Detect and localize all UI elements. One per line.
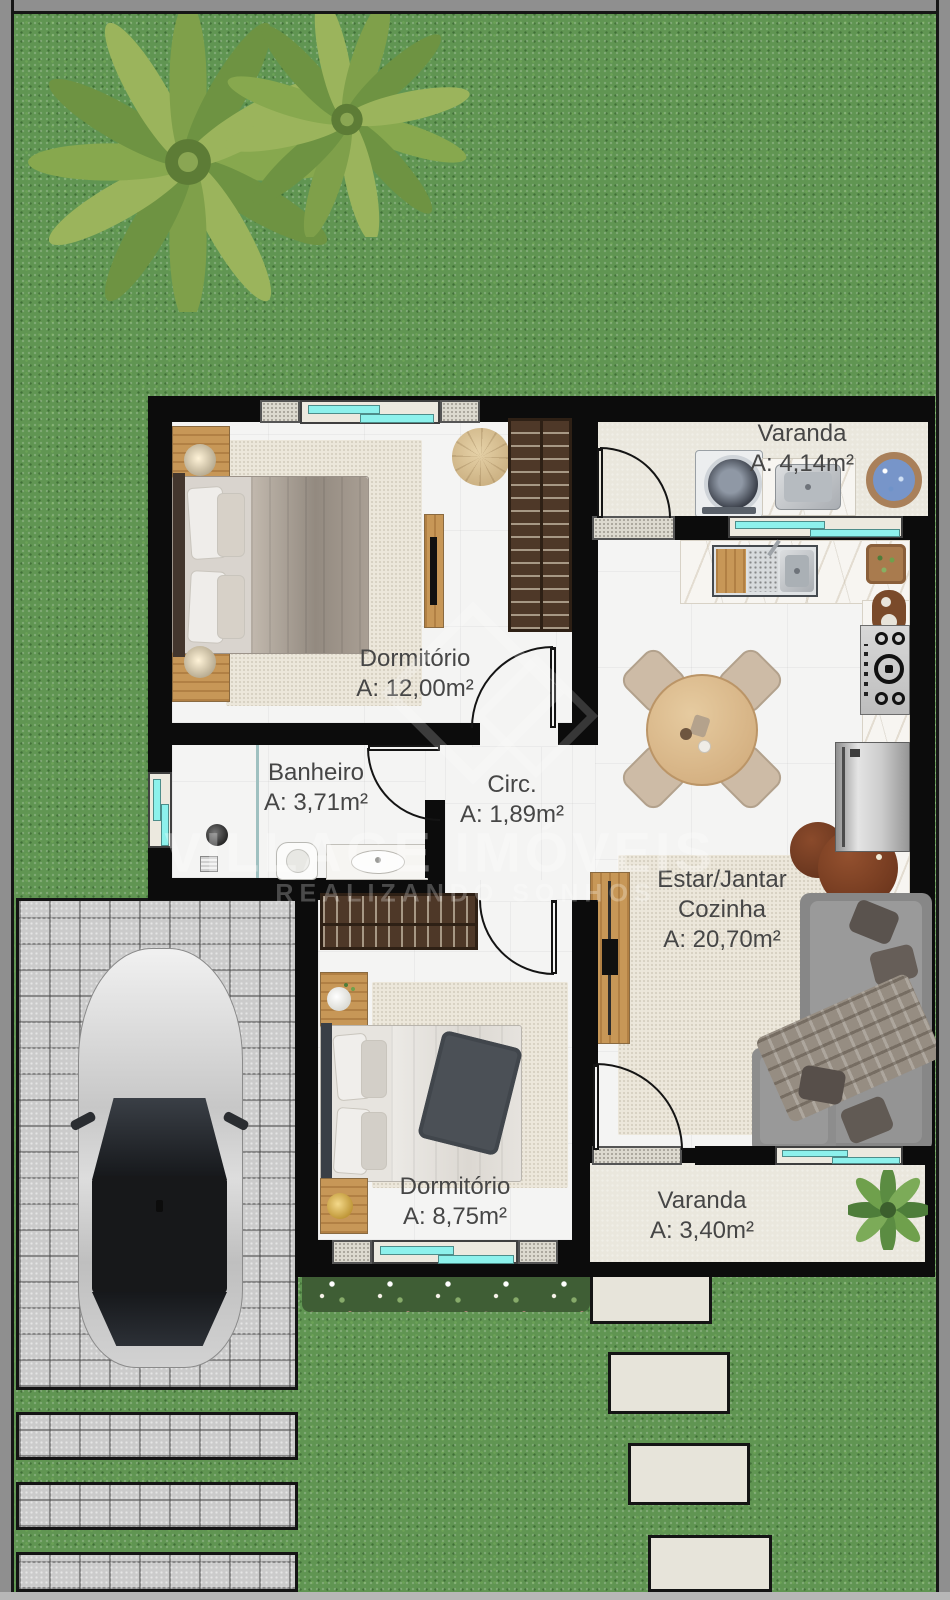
site-border-bottom xyxy=(0,1592,950,1600)
wall-segment xyxy=(572,900,598,1148)
wall-segment xyxy=(572,396,598,745)
window xyxy=(300,400,440,424)
room-name: Dormitório xyxy=(400,1172,511,1202)
stepping-stone xyxy=(648,1535,772,1592)
door-step xyxy=(592,516,675,540)
tv-icon xyxy=(430,537,437,605)
wall-segment xyxy=(695,1146,775,1165)
wall-segment xyxy=(675,516,728,540)
watermark-tagline: REALIZANDO SONHOS xyxy=(275,880,656,909)
car xyxy=(72,948,247,1366)
nightstand xyxy=(320,1178,368,1234)
paver-strip xyxy=(16,1552,298,1592)
double-bed xyxy=(320,1025,522,1182)
room-name: Banheiro xyxy=(264,758,368,788)
room-area: A: 20,70m² xyxy=(657,925,786,955)
pouf xyxy=(452,428,510,486)
window-sill xyxy=(518,1240,558,1264)
window-sill xyxy=(440,400,480,423)
wardrobe xyxy=(508,418,572,632)
window xyxy=(372,1240,518,1264)
room-name: Varanda xyxy=(750,419,854,449)
room-name: Cozinha xyxy=(657,895,786,925)
room-area: A: 3,40m² xyxy=(650,1216,754,1246)
car-windshield xyxy=(92,1098,227,1180)
headboard xyxy=(173,473,185,657)
blanket xyxy=(251,477,368,653)
nightstand xyxy=(320,972,368,1030)
tv-icon xyxy=(602,939,618,975)
paver-strip xyxy=(16,1412,298,1460)
double-bed xyxy=(172,476,369,654)
window-sill xyxy=(260,400,300,423)
site-border-left xyxy=(0,0,14,1600)
laundry-basket xyxy=(866,452,922,508)
site-border-right xyxy=(936,0,950,1600)
watermark-brand: VILLAGE IMÓVEIS xyxy=(164,820,716,885)
counter-plant-icon xyxy=(866,544,906,584)
sink-basin xyxy=(780,550,814,592)
potted-plant-icon xyxy=(848,1170,928,1250)
window-sill xyxy=(332,1240,372,1264)
wall-segment xyxy=(900,516,935,540)
room-label-varanda-servico: Varanda A: 4,14m² xyxy=(750,419,854,479)
room-label-varanda-frontal: Varanda A: 3,40m² xyxy=(650,1186,754,1246)
tv-panel xyxy=(424,514,444,628)
drainboard xyxy=(748,550,778,592)
room-label-banheiro: Banheiro A: 3,71m² xyxy=(264,758,368,818)
site-border-top xyxy=(0,0,950,14)
wall-segment xyxy=(903,1146,935,1165)
palm-tree-icon xyxy=(222,2,472,237)
floor-plan-canvas: Dormitório A: 12,00m² Varanda A: 4,14m² … xyxy=(0,0,950,1600)
car-roof xyxy=(92,1176,227,1294)
door-step xyxy=(592,1146,682,1165)
cutting-board xyxy=(716,549,746,593)
refrigerator xyxy=(835,742,910,852)
cooktop xyxy=(860,625,910,715)
room-name: Varanda xyxy=(650,1186,754,1216)
paver-strip xyxy=(16,1482,298,1530)
car-antenna-icon xyxy=(156,1200,163,1212)
headboard xyxy=(321,1023,332,1184)
room-area: A: 8,75m² xyxy=(400,1202,511,1232)
stepping-stone xyxy=(628,1443,750,1505)
window xyxy=(728,516,903,538)
table-lamp-icon xyxy=(184,646,216,678)
throw-pillow xyxy=(797,1064,846,1105)
room-area: A: 4,14m² xyxy=(750,449,854,479)
table-lamp-icon xyxy=(327,1193,353,1219)
kitchen-sink xyxy=(712,545,818,597)
stepping-stone xyxy=(608,1352,730,1414)
window xyxy=(775,1146,903,1165)
table-lamp-icon xyxy=(184,444,216,476)
room-area: A: 3,71m² xyxy=(264,788,368,818)
room-label-dormitorio-2: Dormitório A: 8,75m² xyxy=(400,1172,511,1232)
dining-table xyxy=(646,674,758,786)
